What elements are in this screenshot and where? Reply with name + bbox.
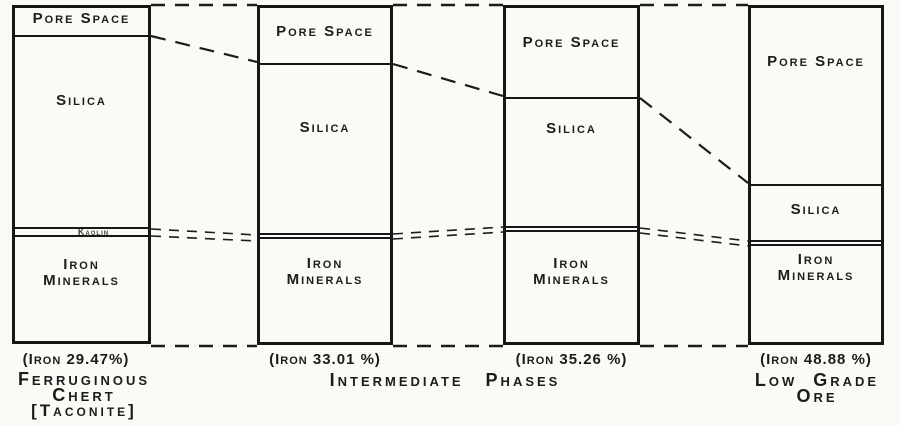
segment-label-pore-space: Pore Space [260, 24, 390, 40]
segment-label-minerals: Minerals [15, 273, 148, 289]
segment-label-iron: Iron [751, 252, 881, 268]
bar-column-intermediate-2: Pore Space Silica Iron Minerals [503, 5, 640, 345]
segment-label-silica: Silica [15, 93, 148, 109]
bar-column-low-grade-ore: Pore Space Silica Iron Minerals [748, 5, 884, 345]
group-label-line: Ore [733, 388, 900, 404]
pore-silica-divider [506, 97, 637, 99]
group-label-intermediate-phases: Intermediate Phases [280, 372, 610, 388]
segment-label-silica: Silica [260, 120, 390, 136]
iron-percent-caption-4: (Iron 48.88 %) [746, 351, 886, 368]
kaolin-band [260, 233, 390, 239]
kaolin-band [506, 226, 637, 232]
pore-silica-connectors [151, 36, 748, 183]
iron-percent-caption-2: (Iron 33.01 %) [255, 351, 395, 368]
bar-column-ferruginous-chert: Pore Space Silica Kaolin Iron Minerals [12, 5, 151, 344]
segment-label-silica: Silica [506, 121, 637, 137]
pore-silica-divider [15, 35, 148, 37]
segment-label-pore-space: Pore Space [751, 54, 881, 70]
segment-label-iron: Iron [260, 256, 390, 272]
segment-label-minerals: Minerals [260, 272, 390, 288]
group-label-line: [Taconite] [0, 403, 168, 419]
kaolin-band-connectors [151, 227, 748, 246]
segment-label-kaolin: Kaolin [39, 227, 148, 237]
segment-label-iron: Iron [506, 256, 637, 272]
segment-label-silica: Silica [751, 202, 881, 218]
group-label-ferruginous-chert: Ferruginous Chert [Taconite] [0, 371, 168, 419]
kaolin-band [751, 240, 881, 246]
pore-silica-divider [751, 184, 881, 186]
iron-percent-caption-3: (Iron 35.26 %) [500, 351, 643, 368]
iron-percent-caption-1: (Iron 29.47%) [2, 351, 150, 368]
pore-silica-divider [260, 63, 390, 65]
bar-column-intermediate-1: Pore Space Silica Iron Minerals [257, 5, 393, 345]
figure-canvas: Pore Space Silica Kaolin Iron Minerals P… [0, 0, 900, 426]
group-label-low-grade-ore: Low Grade Ore [733, 372, 900, 404]
segment-label-pore-space: Pore Space [506, 35, 637, 51]
segment-label-minerals: Minerals [751, 268, 881, 284]
segment-label-iron: Iron [15, 257, 148, 273]
segment-label-pore-space: Pore Space [15, 11, 148, 27]
group-label-line: Intermediate Phases [280, 372, 610, 388]
segment-label-minerals: Minerals [506, 272, 637, 288]
